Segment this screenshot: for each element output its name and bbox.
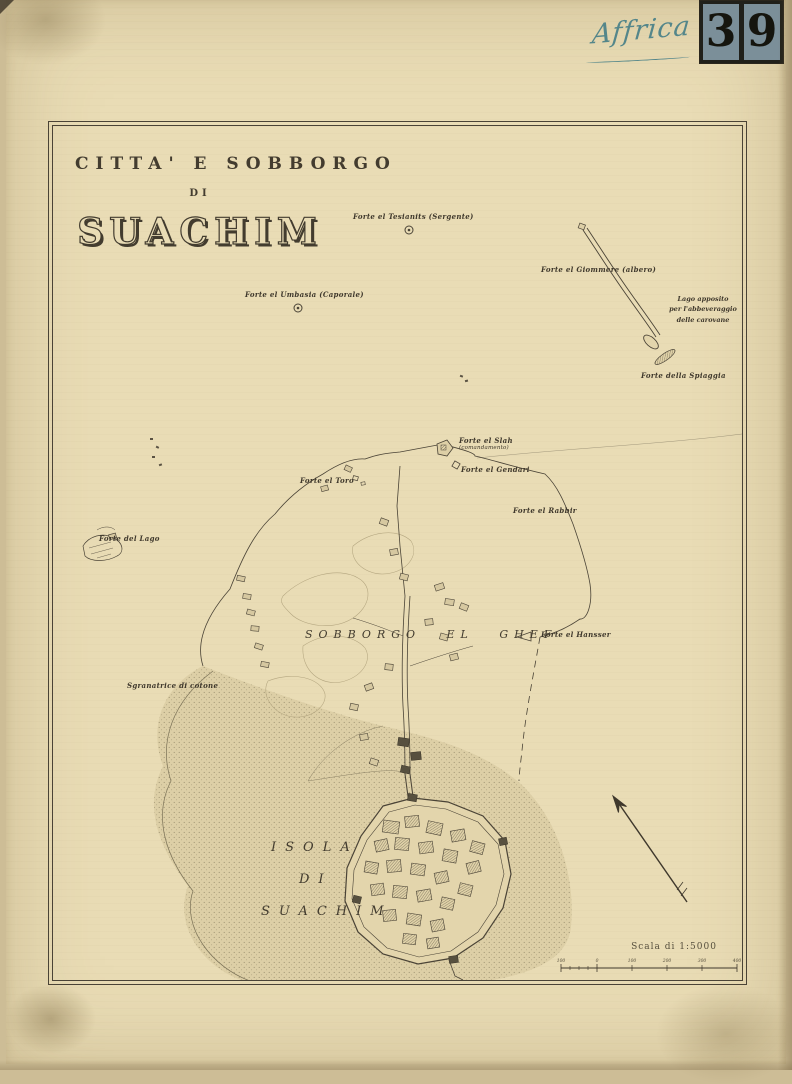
title-line3: SUACHIM <box>75 211 325 253</box>
scale-tick-label: 100 <box>628 958 637 964</box>
label-island-line1: ISOLA <box>271 840 359 855</box>
handwritten-underline <box>586 55 690 63</box>
stamp-digit: 9 <box>747 10 778 54</box>
handwritten-note: Affrica <box>591 9 713 51</box>
title-line1: CITTA' E SOBBORGO <box>75 154 325 174</box>
photo-corner-shadow <box>0 0 14 14</box>
north-arrow-icon <box>613 796 687 902</box>
label-fort-umbasia: Forte el Umbasia (Caporale) <box>245 290 364 299</box>
scale-tick-label: 100 <box>557 958 566 964</box>
scanned-map-photo: Affrica 3 9 <box>0 0 792 1070</box>
hill-contours <box>266 533 414 717</box>
label-cotton-gin: Sgranatrice di cotone <box>127 681 218 690</box>
lake-fort <box>83 527 122 561</box>
label-fort-giommere: Forte el Giommere (albero) <box>541 265 656 274</box>
label-fort-toro: Forte el Toro <box>300 476 354 485</box>
stamp-digit-box: 9 <box>742 1 783 63</box>
label-fort-tesianits: Forte el Tesianits (Sergente) <box>353 212 474 221</box>
caravan-lake-line2: per l'abbeveraggio <box>669 305 737 313</box>
archive-number-stamp: 3 9 <box>699 0 784 64</box>
caravan-lake-line1: Lago apposito <box>677 295 728 303</box>
photo-edge-shadow <box>778 0 792 1070</box>
label-fort-spiaggia: Forte della Spiaggia <box>641 371 726 380</box>
map-area: 100 0 100 200 300 400 CITTA' E SOBBORGO … <box>52 125 743 981</box>
label-fort-lago: Forte del Lago <box>99 534 160 543</box>
scale-tick-label: 0 <box>596 958 599 964</box>
label-fort-rabbir: Forte el Rabbir <box>513 506 577 515</box>
stamp-digit: 3 <box>706 10 737 54</box>
fort-symbols <box>294 226 531 641</box>
scale-tick-label: 400 <box>732 958 742 964</box>
stamp-digit-box: 3 <box>700 1 742 63</box>
scale-caption: Scala di 1:5000 <box>589 942 759 952</box>
label-fort-gendari: Forte el Gendari <box>461 465 530 474</box>
scale-tick-label: 300 <box>698 958 707 964</box>
label-island-line3: SUACHIM <box>261 904 393 919</box>
map-neatline: 100 0 100 200 300 400 CITTA' E SOBBORGO … <box>48 121 747 985</box>
map-sheet: Affrica 3 9 <box>6 0 786 1064</box>
scale-bar: 100 0 100 200 300 400 <box>557 958 742 972</box>
caravan-track <box>477 434 742 458</box>
fort-slah-note: (comandamento) <box>459 445 513 451</box>
dashed-boundary <box>519 637 540 781</box>
paper-stain <box>6 984 96 1054</box>
photo-edge-shadow <box>0 1060 792 1070</box>
scale-tick-label: 200 <box>662 958 672 964</box>
caravan-lake-line3: delle carovane <box>677 316 730 324</box>
title-line2: DI <box>75 188 325 199</box>
scattered-marks <box>150 375 468 467</box>
label-fort-slah: Forte el Slah (comandamento) <box>459 436 513 451</box>
map-title: CITTA' E SOBBORGO DI SUACHIM <box>75 154 325 253</box>
paper-stain <box>0 0 106 65</box>
label-island-line2: DI <box>299 872 333 887</box>
label-caravan-lake-note: Lago apposito per l'abbeveraggio delle c… <box>651 294 755 325</box>
label-suburb-el-ghef: SOBBORGO EL GHEF <box>305 628 557 641</box>
map-drawing: 100 0 100 200 300 400 <box>53 126 742 980</box>
fort-slah-name: Forte el Slah <box>459 436 513 445</box>
